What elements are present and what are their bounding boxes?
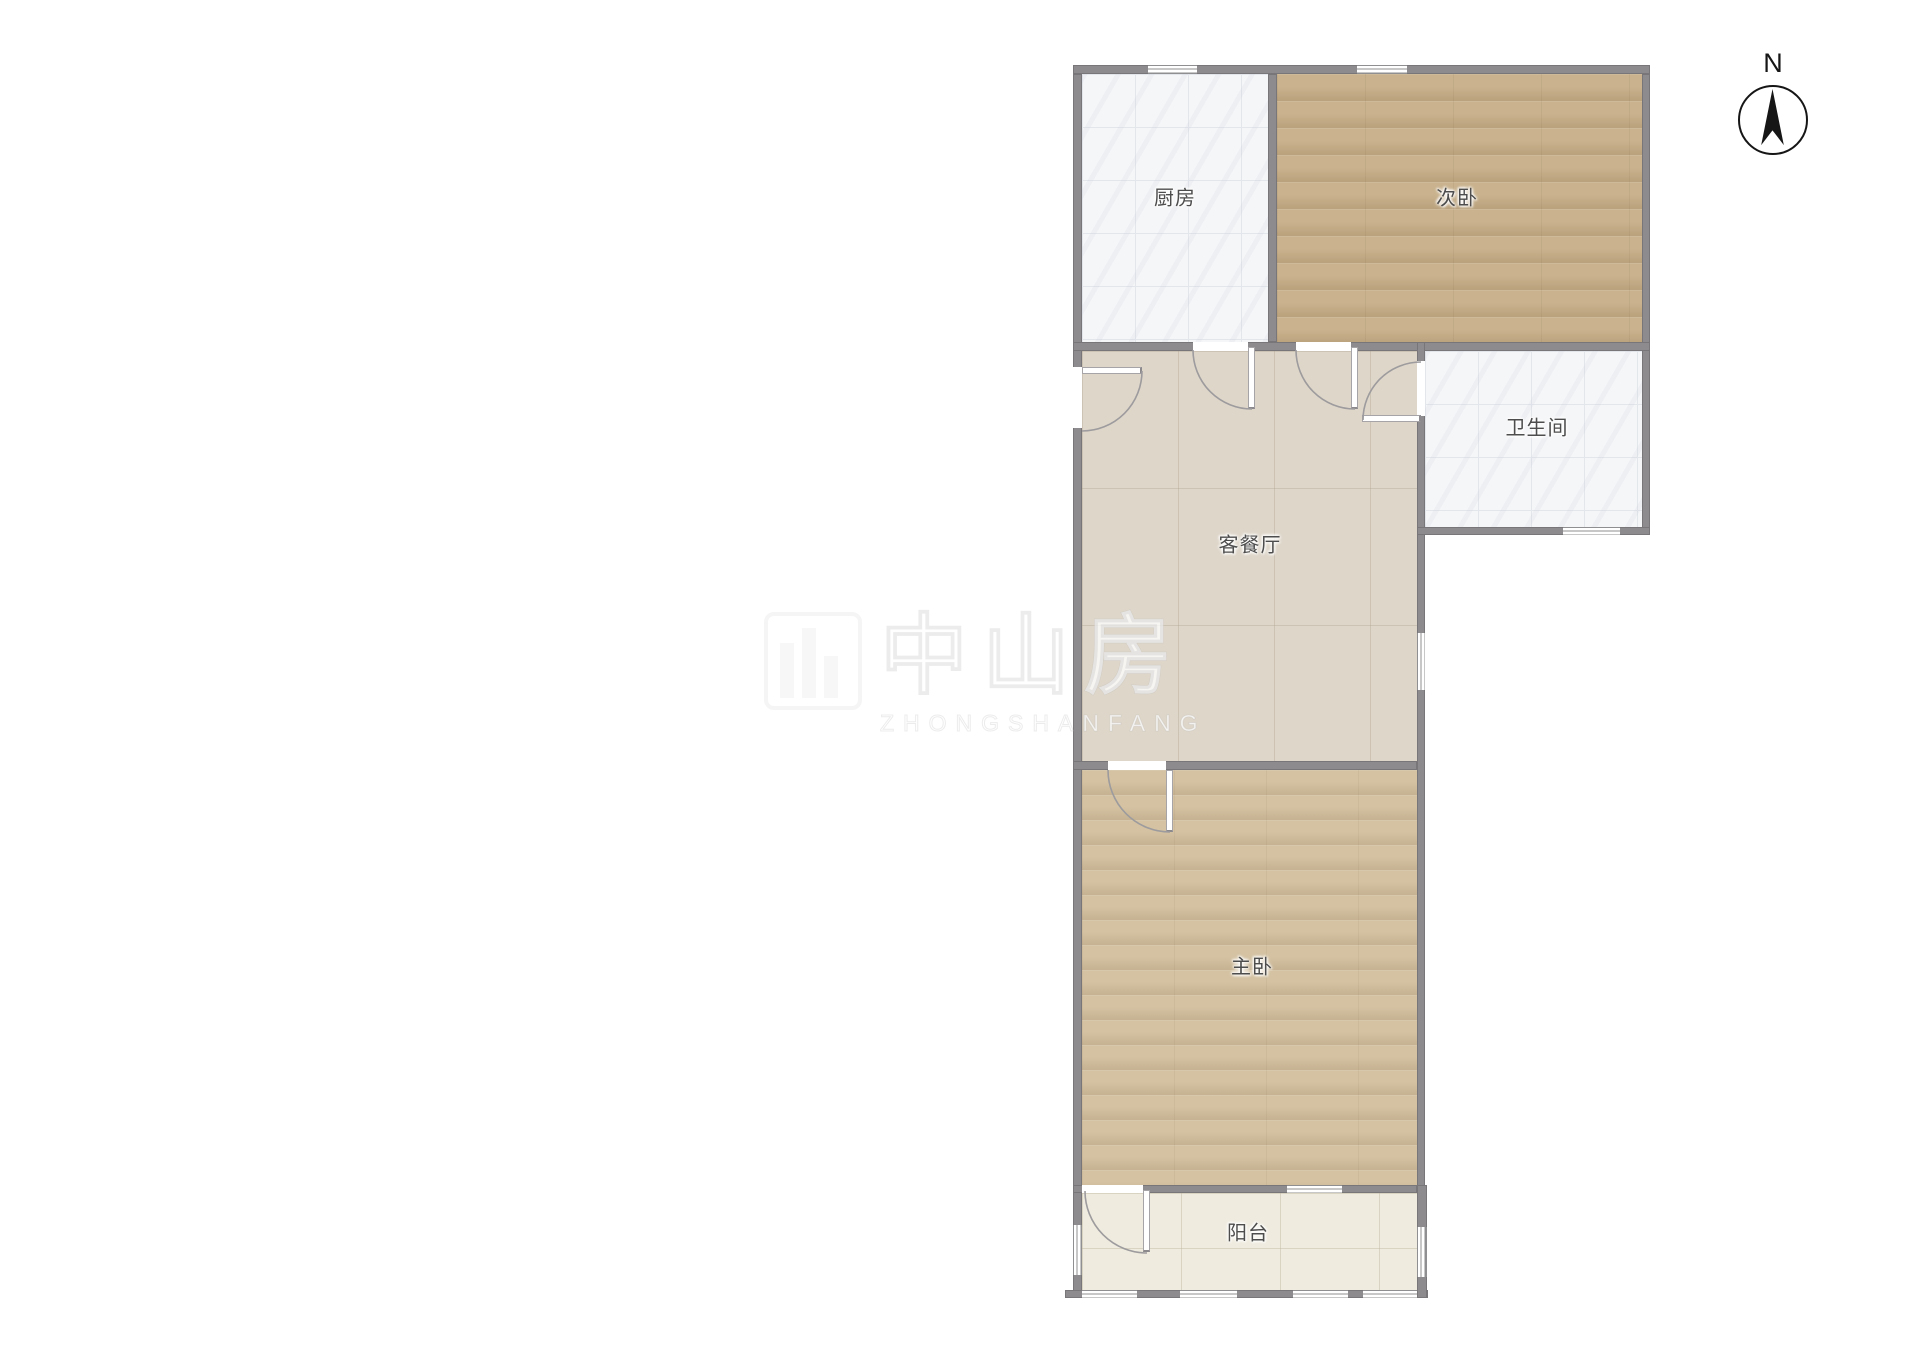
wall-right-vertical [1417, 342, 1425, 1193]
balcony-window-1 [1082, 1290, 1137, 1298]
second-bedroom-window [1357, 65, 1407, 74]
kitchen-window [1148, 65, 1197, 74]
master-balcony-window [1287, 1185, 1342, 1193]
room-label-living-dining: 客餐厅 [1219, 529, 1282, 558]
balcony-window-2 [1180, 1290, 1237, 1298]
entrance-door-opening [1073, 367, 1082, 428]
entrance-door-leaf [1082, 367, 1142, 374]
kitchen-door-opening [1193, 342, 1248, 351]
compass-needle-icon [1740, 87, 1805, 152]
room-label-balcony: 阳台 [1227, 1217, 1269, 1246]
wall-left [1073, 74, 1082, 1298]
balcony-window-3 [1293, 1290, 1348, 1298]
kitchen-door-leaf [1248, 347, 1255, 409]
master-bedroom-door-leaf [1166, 770, 1173, 832]
wall-kitchen-bed2-divider [1268, 74, 1277, 342]
room-label-master-bedroom: 主卧 [1231, 951, 1273, 980]
room-label-kitchen: 厨房 [1154, 182, 1196, 211]
living-room-window [1417, 633, 1425, 690]
room-label-bathroom: 卫生间 [1506, 412, 1569, 441]
balcony-door-opening [1082, 1185, 1143, 1193]
balcony-window-4 [1363, 1290, 1417, 1298]
bathroom-window [1563, 527, 1620, 535]
bathroom-door-leaf [1362, 415, 1421, 422]
compass-ring [1738, 85, 1808, 155]
bathroom-door-opening [1417, 361, 1425, 416]
room-label-second-bedroom: 次卧 [1436, 182, 1478, 211]
compass: N [1738, 48, 1808, 155]
compass-north-label: N [1738, 48, 1808, 79]
wall-right-upper [1642, 74, 1650, 535]
wall-mid-horizontal [1073, 342, 1650, 351]
balcony-left-window [1073, 1225, 1082, 1275]
balcony-right-window [1417, 1227, 1427, 1277]
watermark-logo-icon [764, 612, 862, 710]
second-bedroom-door-leaf [1351, 347, 1358, 409]
balcony-door-leaf [1143, 1190, 1150, 1252]
master-bedroom-door-opening [1108, 761, 1166, 770]
second-bedroom-door-opening [1296, 342, 1351, 351]
floor-plan-canvas: 厨房 次卧 卫生间 客餐厅 主卧 阳台 N 中山房 ZHONGSHANFANG [0, 0, 1920, 1361]
